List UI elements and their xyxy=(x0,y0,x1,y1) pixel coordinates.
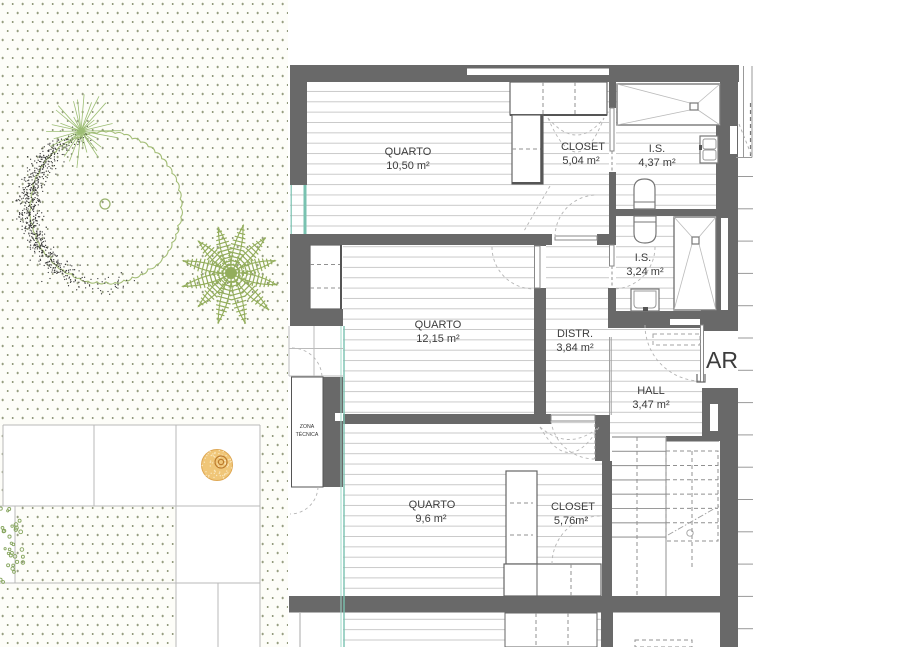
svg-text:AR: AR xyxy=(706,347,738,373)
svg-text:QUARTO: QUARTO xyxy=(385,146,432,158)
svg-text:QUARTO: QUARTO xyxy=(415,319,462,331)
svg-text:QUARTO: QUARTO xyxy=(409,499,456,511)
svg-text:TÉCNICA: TÉCNICA xyxy=(296,431,319,438)
svg-text:3,84 m²: 3,84 m² xyxy=(556,342,594,354)
svg-text:12,15 m²: 12,15 m² xyxy=(416,333,460,345)
svg-text:5,76m²: 5,76m² xyxy=(554,515,589,527)
svg-text:HALL: HALL xyxy=(637,385,665,397)
svg-text:DISTR.: DISTR. xyxy=(557,328,593,340)
svg-text:5,04 m²: 5,04 m² xyxy=(562,155,600,167)
svg-text:CLOSET: CLOSET xyxy=(561,141,605,153)
svg-text:3,47 m²: 3,47 m² xyxy=(632,399,670,411)
svg-text:9,6 m²: 9,6 m² xyxy=(415,513,447,525)
svg-text:4,37 m²: 4,37 m² xyxy=(638,157,676,169)
svg-text:I.S.: I.S. xyxy=(649,143,666,155)
svg-text:CLOSET: CLOSET xyxy=(551,501,595,513)
svg-text:3,24 m²: 3,24 m² xyxy=(626,266,664,278)
svg-text:ZONA: ZONA xyxy=(300,424,315,430)
svg-text:10,50 m²: 10,50 m² xyxy=(386,160,430,172)
svg-text:I.S.: I.S. xyxy=(635,252,652,264)
